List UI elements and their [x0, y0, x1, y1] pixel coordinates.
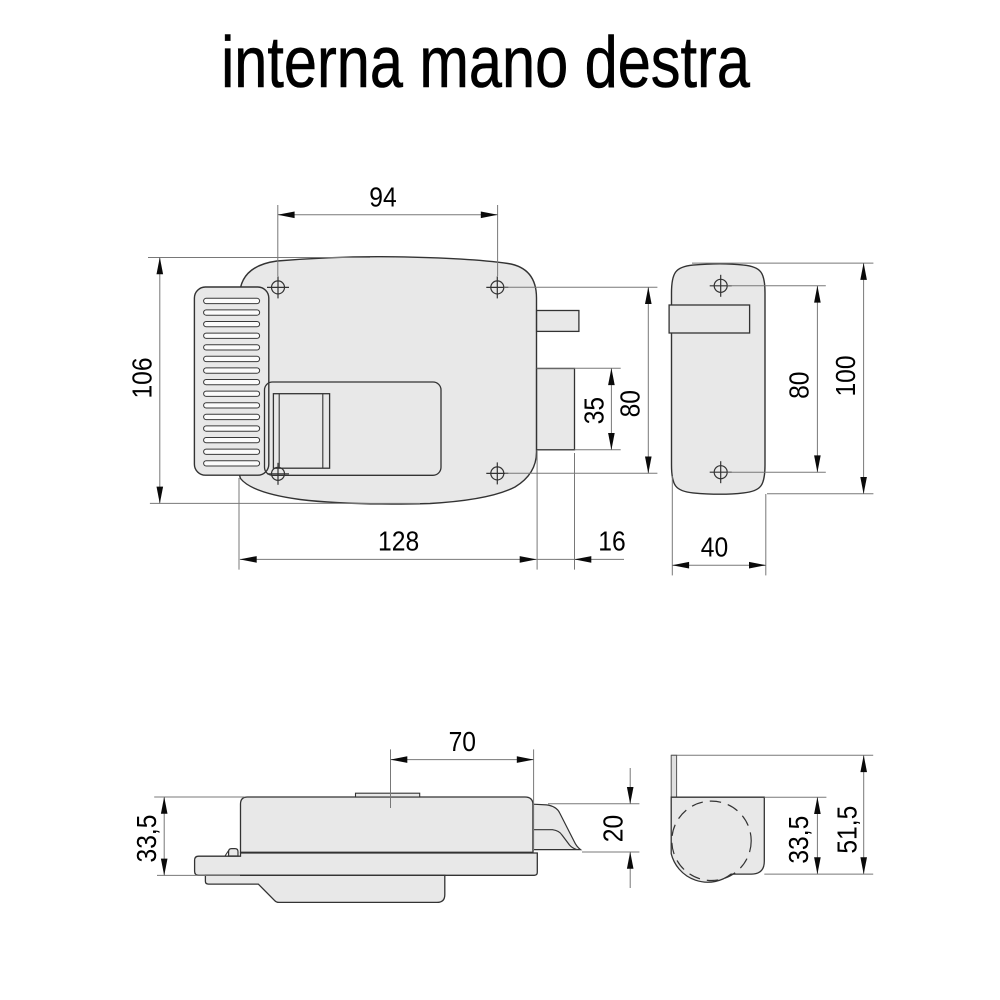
svg-text:128: 128 — [378, 525, 419, 557]
svg-text:80: 80 — [783, 371, 815, 398]
svg-text:35: 35 — [578, 397, 610, 424]
svg-text:51,5: 51,5 — [831, 806, 863, 854]
svg-text:40: 40 — [701, 531, 728, 563]
svg-text:70: 70 — [449, 725, 476, 757]
svg-text:106: 106 — [126, 357, 158, 398]
svg-text:33,5: 33,5 — [131, 815, 163, 863]
svg-text:33,5: 33,5 — [783, 816, 815, 864]
svg-text:20: 20 — [597, 815, 629, 842]
svg-text:80: 80 — [614, 390, 646, 417]
svg-text:100: 100 — [830, 355, 862, 396]
svg-text:94: 94 — [369, 181, 396, 213]
svg-text:interna mano destra: interna mano destra — [221, 22, 750, 103]
svg-text:16: 16 — [598, 525, 625, 557]
